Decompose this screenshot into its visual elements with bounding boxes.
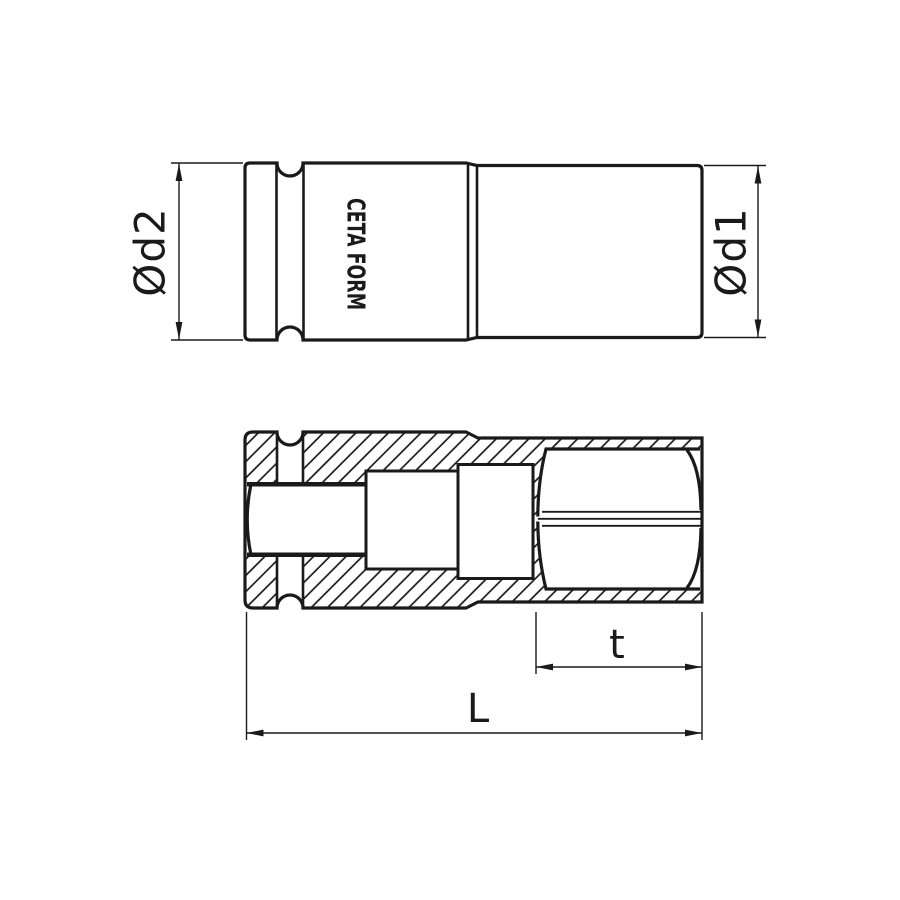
socket-body-outline [245,163,702,340]
L-arrow-left [247,730,264,737]
dimension-d1: Ød1 [704,166,766,338]
dimension-L: L [247,612,703,740]
d2-arrow-down [176,322,183,340]
dim-label-d2: Ød2 [126,207,175,296]
section-view: t L [245,432,702,740]
square-drive-cavity [247,482,367,557]
d1-arrow-down [755,320,762,338]
L-arrow-right [685,730,702,737]
dimension-t: t [536,612,702,674]
square-drive-bore [247,482,367,557]
t-arrow-right [685,664,702,671]
dim-label-t: t [609,622,625,668]
relief-bore [458,465,533,579]
dimension-d2: Ød2 [126,163,244,340]
brand-text: CETA FORM [342,198,371,310]
socket-technical-drawing: CETA FORM Ød2 Ød1 [0,0,900,900]
d1-arrow-up [755,166,762,184]
drawing-canvas: CETA FORM Ød2 Ød1 [0,0,900,900]
dim-label-L: L [467,686,490,732]
d2-arrow-up [176,164,183,182]
t-arrow-left [536,664,553,671]
side-view: CETA FORM Ød2 Ød1 [126,163,767,340]
hex-socket-cavity [538,449,703,589]
dim-label-d1: Ød1 [707,207,756,296]
middle-bore [366,471,458,569]
